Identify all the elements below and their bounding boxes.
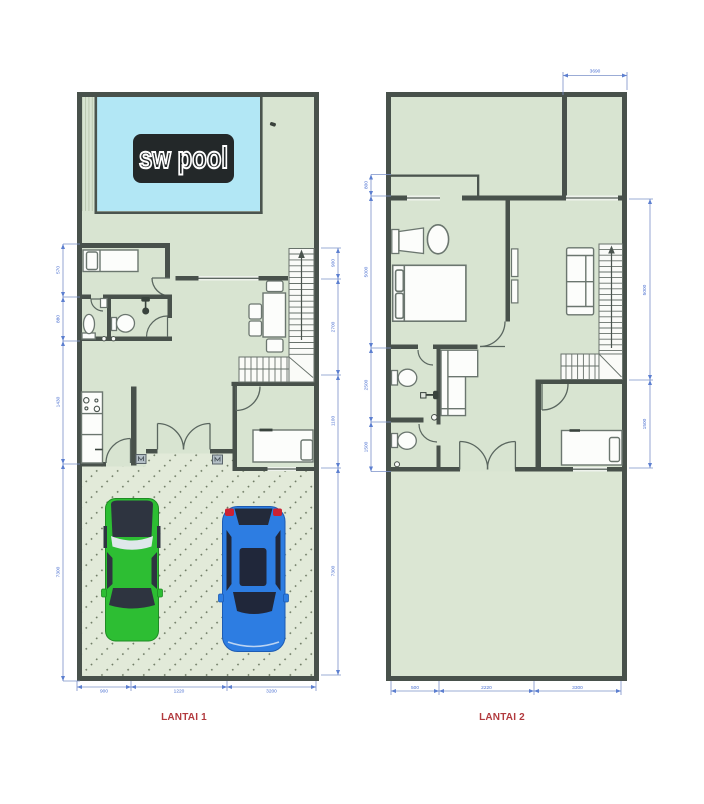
svg-text:1500: 1500 (642, 418, 648, 429)
svg-text:2700: 2700 (331, 321, 337, 332)
svg-text:880: 880 (56, 315, 62, 323)
svg-text:500: 500 (411, 685, 419, 691)
svg-text:800: 800 (364, 181, 370, 189)
svg-text:3690: 3690 (590, 69, 601, 75)
svg-text:570: 570 (56, 266, 62, 274)
svg-text:LANTAI 2: LANTAI 2 (479, 712, 525, 723)
svg-text:3200: 3200 (266, 689, 277, 695)
svg-text:900: 900 (331, 259, 337, 267)
svg-text:1430: 1430 (56, 396, 62, 407)
svg-text:1500: 1500 (364, 441, 370, 452)
svg-text:1100: 1100 (331, 416, 337, 427)
svg-text:5000: 5000 (642, 284, 648, 295)
svg-text:5000: 5000 (364, 266, 370, 277)
svg-text:LANTAI 1: LANTAI 1 (161, 712, 207, 723)
svg-text:3300: 3300 (572, 685, 583, 691)
svg-text:7300: 7300 (331, 565, 337, 576)
svg-text:2220: 2220 (481, 685, 492, 691)
svg-text:7300: 7300 (56, 566, 62, 577)
svg-text:sw pool: sw pool (139, 140, 228, 175)
svg-text:2500: 2500 (364, 379, 370, 390)
svg-text:1220: 1220 (174, 689, 185, 695)
svg-text:900: 900 (100, 689, 108, 695)
